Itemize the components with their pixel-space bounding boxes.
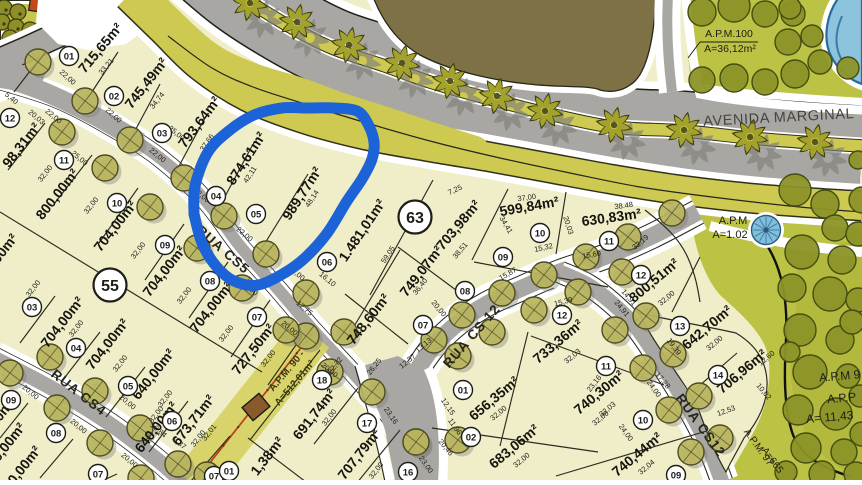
svg-text:63: 63 (406, 210, 424, 227)
svg-text:01: 01 (64, 51, 75, 62)
svg-text:12: 12 (5, 113, 16, 124)
svg-text:04: 04 (211, 191, 222, 202)
svg-text:A.P.P: A.P.P (827, 390, 857, 406)
svg-text:07: 07 (93, 469, 104, 480)
svg-text:13: 13 (675, 321, 686, 332)
svg-text:12: 12 (636, 270, 647, 281)
svg-text:18: 18 (317, 375, 328, 386)
svg-text:A.P.M.100: A.P.M.100 (705, 28, 753, 40)
svg-text:05: 05 (123, 381, 134, 392)
svg-text:01: 01 (224, 466, 235, 477)
svg-text:16: 16 (403, 467, 414, 478)
svg-text:11: 11 (601, 361, 612, 372)
svg-text:10: 10 (112, 198, 123, 209)
svg-text:17: 17 (362, 418, 373, 429)
svg-text:14: 14 (713, 370, 724, 381)
svg-text:04: 04 (71, 343, 82, 354)
svg-text:55: 55 (101, 278, 119, 295)
svg-text:02: 02 (109, 91, 120, 102)
svg-text:06: 06 (167, 416, 178, 427)
svg-text:03: 03 (27, 302, 38, 313)
svg-text:05: 05 (251, 209, 262, 220)
svg-text:06: 06 (322, 257, 333, 268)
svg-text:07: 07 (252, 312, 263, 323)
svg-text:01: 01 (458, 385, 469, 396)
svg-text:09: 09 (498, 252, 509, 263)
svg-text:03: 03 (157, 128, 168, 139)
svg-text:02: 02 (466, 432, 477, 443)
svg-text:A.P.M: A.P.M (719, 215, 748, 227)
svg-text:07: 07 (209, 471, 220, 480)
svg-text:09: 09 (6, 395, 17, 406)
svg-text:A=36,12m²: A=36,12m² (704, 43, 756, 55)
svg-text:08: 08 (460, 286, 471, 297)
svg-text:08: 08 (51, 428, 62, 439)
svg-text:08: 08 (205, 276, 216, 287)
svg-text:07: 07 (418, 320, 429, 331)
svg-text:10: 10 (535, 228, 546, 239)
svg-text:10: 10 (638, 415, 649, 426)
svg-text:09: 09 (160, 240, 171, 251)
svg-text:11: 11 (59, 155, 70, 166)
svg-text:12: 12 (557, 310, 568, 321)
svg-text:A=1.02: A=1.02 (712, 229, 747, 241)
svg-text:09: 09 (671, 470, 682, 480)
svg-text:11: 11 (604, 236, 615, 247)
